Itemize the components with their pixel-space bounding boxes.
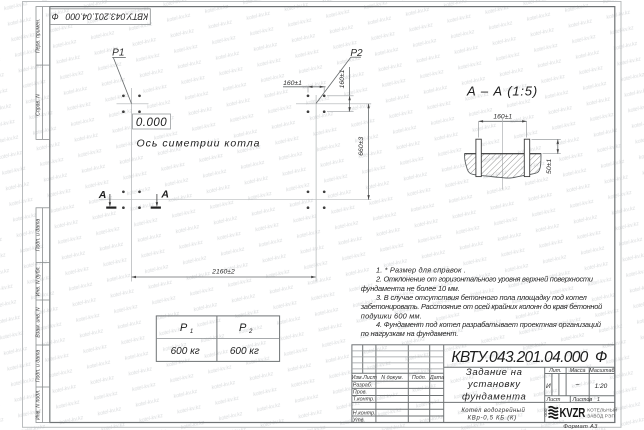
svg-text:А: А: [98, 189, 107, 201]
svg-text:КВТУ.043.201.04.000 Ф: КВТУ.043.201.04.000 Ф: [52, 11, 148, 21]
svg-text:И: И: [546, 383, 551, 390]
svg-text:2. Отклонение от горизонтально: 2. Отклонение от горизонтального уровня …: [375, 275, 593, 284]
svg-text:1: 1: [597, 397, 600, 403]
svg-text:Н.контр.: Н.контр.: [353, 411, 376, 417]
svg-text:Подп.: Подп.: [412, 375, 426, 381]
svg-text:Перв. примен.: Перв. примен.: [36, 19, 42, 53]
svg-text:Р: Р: [180, 322, 188, 334]
svg-text:2: 2: [248, 329, 253, 335]
svg-text:1. * Размер для справок .: 1. * Размер для справок .: [376, 266, 466, 275]
svg-text:Взам. инв. N: Взам. инв. N: [36, 307, 42, 337]
svg-text:50±1: 50±1: [546, 159, 553, 174]
svg-text:КОТЕЛЬНЫЙ: КОТЕЛЬНЫЙ: [587, 406, 617, 413]
svg-text:Подп. и дата: Подп. и дата: [36, 219, 42, 252]
svg-text:Лист: Лист: [546, 397, 561, 403]
svg-text:Подп. и дата: Подп. и дата: [36, 350, 42, 383]
svg-text:600 кг: 600 кг: [230, 346, 259, 357]
svg-text:Утв.: Утв.: [352, 417, 365, 423]
svg-text:по нагрузкам на фундамент.: по нагрузкам на фундамент.: [361, 329, 459, 338]
svg-text:Разраб.: Разраб.: [353, 383, 373, 389]
svg-text:А: А: [160, 188, 169, 200]
svg-text:4. Фундамент под котел разраба: 4. Фундамент под котел разрабатывает про…: [376, 320, 601, 329]
svg-text:KVZR: KVZR: [560, 407, 586, 420]
svg-text:Задание на: Задание на: [466, 367, 523, 378]
svg-text:Листов: Листов: [572, 397, 593, 403]
svg-text:КВТУ.043.201.04.000 Ф: КВТУ.043.201.04.000 Ф: [451, 349, 607, 366]
svg-text:ЗАВОД РЭП: ЗАВОД РЭП: [587, 413, 615, 418]
svg-text:N докум.: N докум.: [381, 375, 403, 381]
svg-text:Лит.: Лит.: [548, 368, 562, 374]
svg-text:ООО: ООО: [544, 408, 548, 416]
svg-text:660±3: 660±3: [358, 137, 365, 156]
svg-text:Р: Р: [239, 322, 247, 334]
svg-text:Инв. N дубл.: Инв. N дубл.: [36, 266, 42, 296]
svg-text:Т.контр.: Т.контр.: [353, 397, 375, 403]
svg-text:Изм.Лист: Изм.Лист: [352, 375, 378, 381]
svg-text:1:20: 1:20: [595, 383, 608, 390]
svg-text:–: –: [575, 382, 580, 389]
svg-text:Ось симетрии котла: Ось симетрии котла: [137, 138, 261, 150]
svg-text:3. В случае отсутствия бетонно: 3. В случае отсутствия бетонного пола пл…: [376, 293, 588, 302]
svg-text:1: 1: [190, 329, 193, 335]
svg-text:Справ. N: Справ. N: [36, 94, 42, 116]
svg-text:600 кг: 600 кг: [171, 346, 200, 357]
svg-text:фундамента не более 10 мм.: фундамента не более 10 мм.: [361, 284, 460, 293]
svg-text:Формат А3: Формат А3: [563, 424, 598, 430]
svg-text:фундамента: фундамента: [462, 391, 526, 402]
svg-text:160±1: 160±1: [339, 69, 346, 88]
svg-text:Инв. N подл.: Инв. N подл.: [36, 390, 42, 420]
svg-text:Пров.: Пров.: [353, 390, 367, 396]
svg-text:0.000: 0.000: [136, 117, 167, 129]
svg-text:А – А (1:5): А – А (1:5): [466, 84, 538, 99]
svg-text:КВр-0,5 КБ (К): КВр-0,5 КБ (К): [468, 416, 517, 422]
svg-text:Котел водогрейный: Котел водогрейный: [461, 407, 525, 414]
svg-text:Масса: Масса: [570, 368, 586, 374]
svg-text:160±1: 160±1: [283, 80, 302, 87]
svg-text:Масштаб: Масштаб: [589, 368, 615, 374]
svg-text:2160±2: 2160±2: [211, 268, 235, 275]
svg-text:установку: установку: [467, 379, 521, 390]
svg-text:Р1: Р1: [112, 48, 124, 59]
svg-text:Дата: Дата: [429, 375, 444, 381]
svg-text:забетонировать. Расстояние от: забетонировать. Расстояние от осей крайн…: [360, 302, 602, 311]
